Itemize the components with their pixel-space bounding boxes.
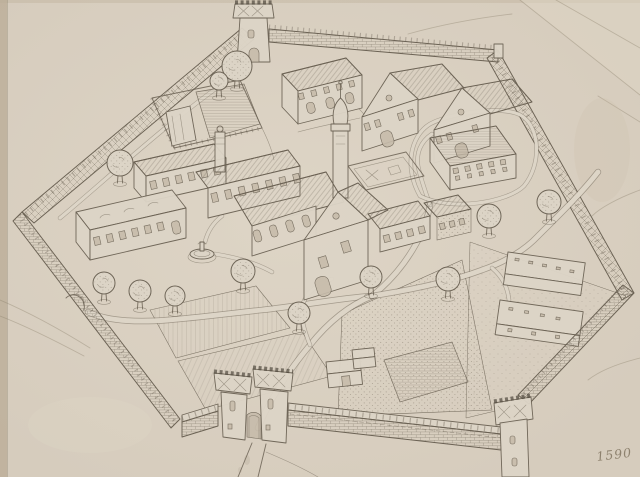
gable-window — [458, 109, 464, 115]
rose-window — [333, 213, 339, 219]
tower-window — [268, 399, 273, 409]
tower-window — [512, 458, 517, 466]
tower-window — [266, 425, 270, 430]
fountain-pillar — [200, 242, 204, 251]
shed-front — [353, 357, 376, 369]
tower-body — [260, 389, 288, 443]
pencil-drawing: 1590 — [0, 0, 640, 477]
drawing-of-walled-compound: 1590 — [0, 0, 640, 477]
great-hall-east — [430, 126, 516, 190]
wall-corner-post — [494, 44, 503, 58]
pencil-smudge — [244, 455, 250, 465]
tower-window — [510, 436, 515, 444]
tower-body — [500, 419, 529, 477]
tower-crown — [214, 373, 252, 394]
gable-window — [386, 95, 392, 101]
spire-balustrade — [331, 124, 350, 131]
tower-window — [230, 401, 235, 411]
tower-window — [228, 424, 232, 429]
tower-crown — [233, 4, 274, 18]
paper-left-edge — [0, 0, 7, 477]
shed-door — [342, 376, 351, 387]
tower-body — [221, 392, 247, 440]
pencil-smudge — [238, 467, 242, 473]
paper-light-patch — [28, 397, 152, 453]
tower-window — [248, 30, 254, 38]
garden-stall — [166, 106, 196, 146]
